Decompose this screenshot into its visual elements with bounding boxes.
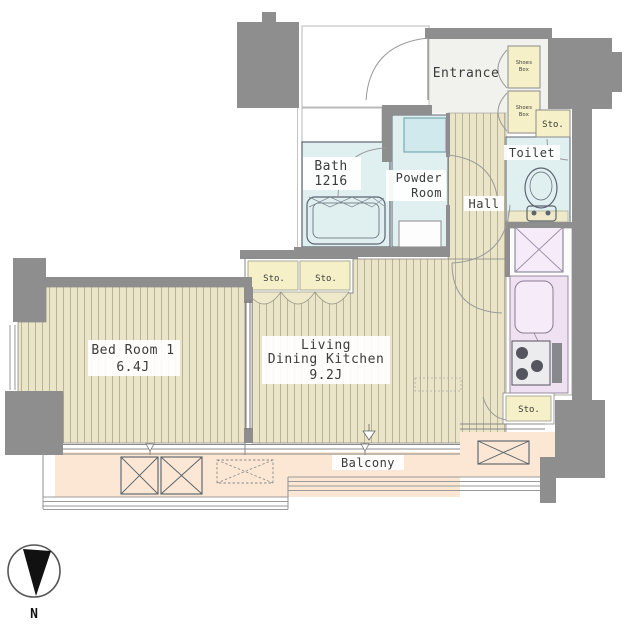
wall-segment (382, 105, 392, 162)
pipe-space (302, 108, 382, 142)
wall-segment (13, 258, 46, 322)
wall-segment (40, 277, 252, 287)
wall-segment (555, 400, 605, 478)
wall-segment (446, 205, 450, 250)
wall-segment (244, 428, 253, 443)
wall-segment (244, 287, 253, 303)
toilet-control (546, 211, 551, 216)
ldk-label: Living (301, 338, 351, 353)
storage-label: Sto. (315, 274, 337, 284)
wall-segment (540, 457, 556, 503)
bedroom-label: Bed Room 1 (91, 343, 174, 358)
stove-burner (516, 347, 528, 359)
compass-north-label: N (30, 607, 38, 622)
storage-label: Sto. (263, 274, 285, 284)
bath-label: Bath (314, 159, 347, 174)
wall-segment (610, 52, 622, 92)
stove-burner (531, 360, 543, 372)
toilet-label: Toilet (509, 146, 555, 160)
bath-size-label: 1216 (314, 174, 347, 189)
wall-segment (240, 250, 358, 259)
shoes-box-label: Shoes (516, 105, 533, 111)
balcony-label: Balcony (341, 456, 395, 470)
compass: N (8, 545, 60, 622)
wall-segment (548, 38, 612, 109)
stove (512, 341, 550, 385)
storage-label: Sto. (542, 120, 564, 130)
powder-room-label: Powder (396, 171, 442, 185)
corridor-floor (302, 26, 429, 107)
hall-floor (448, 113, 506, 263)
wall-segment (5, 391, 63, 455)
hall-label: Hall (469, 197, 500, 211)
window-latch (361, 444, 369, 451)
ldk-area-label: 9.2J (309, 368, 342, 383)
toilet-mat (508, 211, 568, 222)
storage-label: Sto. (518, 405, 540, 415)
bedroom-area-label: 6.4J (116, 360, 149, 375)
toilet-control (532, 211, 537, 216)
wall-segment (425, 28, 552, 39)
stove-burner (516, 368, 528, 380)
entrance-label: Entrance (433, 66, 500, 81)
shoes-box-label: Box (519, 112, 530, 118)
wall-segment (572, 109, 592, 405)
wall-segment (506, 222, 572, 228)
vanity-sink (404, 118, 446, 152)
wall-segment (237, 22, 299, 108)
floorplan-svg: Entrance Shoes Box Shoes Box Sto. Bath 1… (0, 0, 630, 640)
shoes-box-label: Shoes (516, 60, 533, 66)
wall-segment (505, 222, 510, 277)
shoes-box-label: Box (519, 67, 530, 73)
powder-room-label: Room (411, 186, 442, 200)
floorplan-page: Entrance Shoes Box Shoes Box Sto. Bath 1… (0, 0, 630, 640)
kitchen-sink (515, 281, 553, 333)
washer-pan (399, 221, 441, 247)
wall-segment (262, 12, 276, 23)
ldk-label: Dining Kitchen (268, 352, 385, 367)
window-latch (146, 444, 154, 451)
wall-segment (446, 113, 450, 157)
stove-grill (552, 343, 562, 383)
